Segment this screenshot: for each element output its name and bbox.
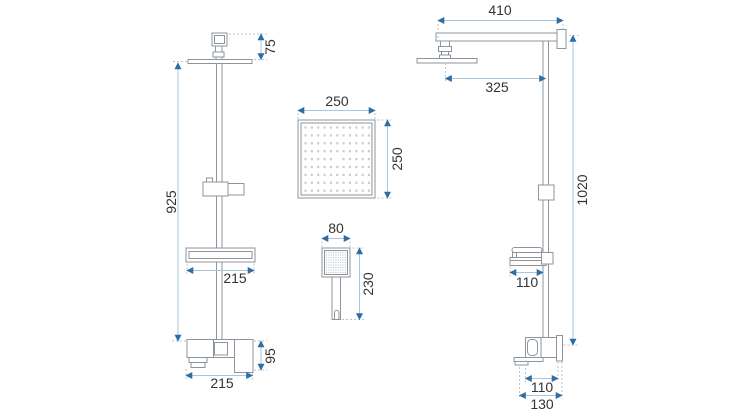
dim-head-width: 250 [298, 93, 375, 119]
dim-label-column-length: 1020 [574, 174, 590, 205]
hand-nozzle-grid [326, 252, 346, 273]
dim-label-arm-length: 410 [488, 2, 512, 18]
dim-side-arm-reach: 325 [446, 63, 546, 95]
dim-side-column-length: 1020 [564, 36, 591, 346]
soap-shelf [186, 248, 255, 262]
rain-head-edge [188, 60, 252, 64]
dim-label-arm-reach: 325 [485, 79, 509, 95]
dim-side-mixer-depth: 110 [526, 360, 559, 395]
rain-head-top-view: 250 250 [298, 93, 405, 198]
wall-bracket [212, 33, 227, 60]
dim-head-depth: 250 [378, 120, 406, 198]
dim-label-hand-width: 80 [328, 220, 344, 236]
dim-label-column-height: 925 [163, 190, 179, 214]
side-view: 410 325 1020 110 110 130 [417, 2, 590, 412]
shower-column [217, 64, 223, 340]
mixer-body [187, 340, 253, 373]
dim-label-mixer-depth: 110 [531, 379, 554, 395]
dim-front-mixer-height: 95 [254, 341, 278, 370]
dim-front-head-offset: 75 [229, 34, 278, 60]
side-mixer-body [514, 336, 563, 366]
dim-label-shelf-width: 215 [223, 270, 247, 286]
side-rain-head-edge [417, 59, 477, 64]
hand-shower-view: 80 230 [322, 220, 376, 320]
hand-shower-handle [332, 277, 341, 320]
dim-label-mixer-width: 215 [210, 375, 234, 391]
dim-label-head-depth: 250 [389, 147, 405, 171]
dim-side-shelf-depth: 110 [510, 267, 543, 291]
side-holder-clamp [539, 185, 555, 200]
dim-label-head-width: 250 [325, 93, 349, 109]
dim-label-head-offset: 75 [262, 39, 278, 55]
technical-drawing: 75 925 215 95 215 [0, 0, 750, 418]
front-view: 75 925 215 95 215 [163, 33, 278, 391]
dim-label-shelf-depth: 110 [516, 274, 539, 290]
hand-shower-holder [203, 178, 244, 196]
dim-label-hand-length: 230 [360, 272, 376, 296]
dim-label-mixer-total-depth: 130 [530, 396, 554, 412]
dim-front-column-height: 925 [163, 62, 188, 342]
dim-hand-width: 80 [322, 220, 350, 247]
dim-label-mixer-height: 95 [262, 348, 278, 364]
